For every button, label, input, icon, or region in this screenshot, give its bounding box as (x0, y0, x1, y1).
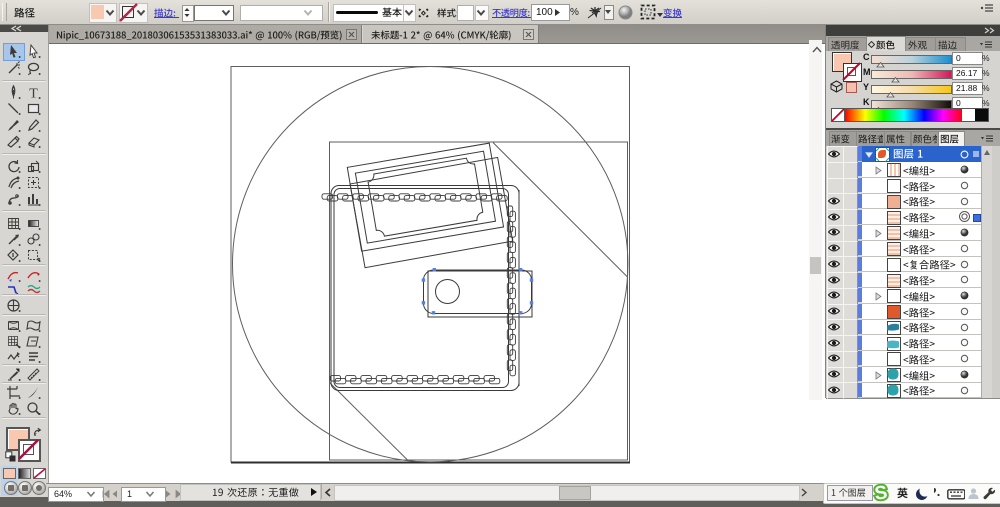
svg-text:T: T (29, 87, 38, 101)
